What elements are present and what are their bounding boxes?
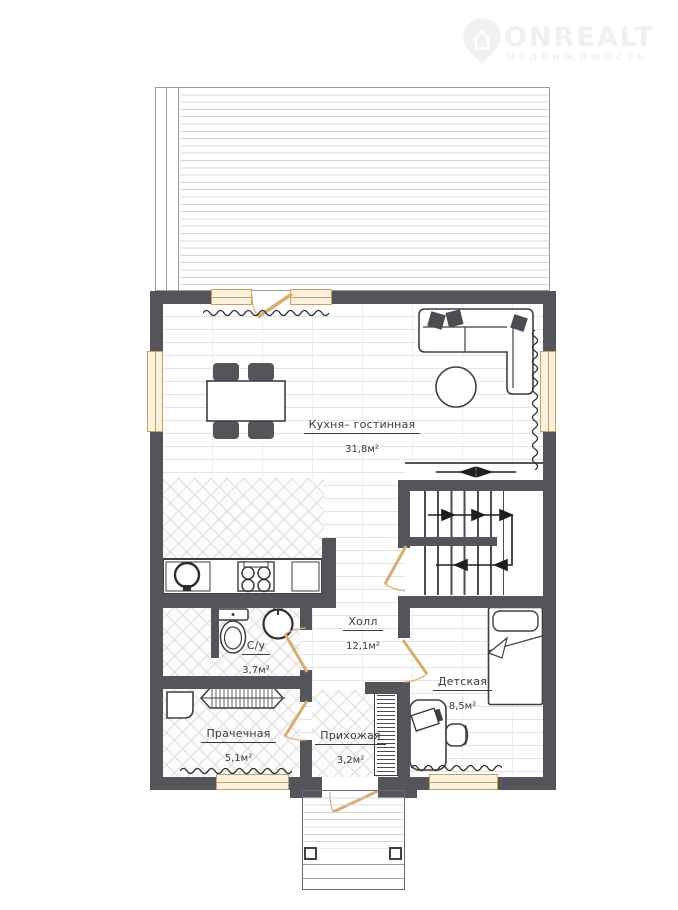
window-terrace-right <box>290 289 332 305</box>
porch <box>302 790 405 890</box>
desk-chair <box>446 724 466 746</box>
curtain-living-east <box>530 330 540 470</box>
room-label-bathroom: С/у 3,7м² <box>226 634 286 677</box>
curtain-living-north <box>203 308 330 318</box>
stairs-door <box>378 542 410 596</box>
room-label-laundry: Прачечная 5,1м² <box>196 722 281 765</box>
laundry-door <box>280 698 310 744</box>
room-name: Кухня– гостинная <box>304 418 421 434</box>
window-terrace-left <box>211 289 252 305</box>
window-laundry <box>216 774 289 790</box>
room-name: Прихожая <box>315 729 386 745</box>
wall-kids-west-bottom <box>398 682 410 777</box>
wall-stairs-south <box>398 596 543 608</box>
floor-kitchen <box>163 478 324 560</box>
window-living-west <box>147 351 163 432</box>
stairs-mid-landing-wall <box>405 537 497 546</box>
watermark-brand: ONREALT <box>504 22 655 53</box>
room-label-hall: Холл 12,1м² <box>323 610 403 653</box>
floor-plan: ONREALT НЕДВИЖИМОСТЬ <box>0 0 678 910</box>
room-name: Детская <box>433 675 492 691</box>
kitchen-sink <box>175 563 199 587</box>
onrealt-pin-house-icon <box>461 17 503 67</box>
porch-post-left <box>304 847 317 860</box>
wall-entry-north-stub <box>365 682 398 694</box>
washing-machine <box>165 690 195 720</box>
room-name: Прачечная <box>201 727 275 743</box>
wall-stairs-north <box>398 480 543 491</box>
porch-step-line-1 <box>303 864 404 865</box>
terrace-edge-line-1 <box>166 88 167 290</box>
sink-tap <box>183 585 191 591</box>
wall-bathroom-stub <box>211 608 219 658</box>
room-area: 12,1м² <box>346 641 380 652</box>
room-area: 3,2м² <box>337 755 364 766</box>
wall-kitchen-end-stub <box>322 538 336 594</box>
curtain-laundry <box>180 766 292 776</box>
wall-kitchen-south <box>150 594 336 608</box>
room-area: 3,7м² <box>242 665 269 676</box>
porch-post-right <box>389 847 402 860</box>
porch-decking <box>303 791 404 849</box>
terrace-edge-line-2 <box>178 88 179 290</box>
wall-top-right <box>330 291 556 304</box>
dining-table-with-chairs <box>205 362 287 440</box>
room-label-kids: Детская 8,5м² <box>420 670 505 713</box>
wall-bathroom-south <box>150 676 312 689</box>
room-area: 31,8м² <box>345 444 379 455</box>
coffee-table <box>433 364 479 410</box>
watermark-tagline: НЕДВИЖИМОСТЬ <box>507 53 648 63</box>
room-area: 5,1м² <box>225 753 252 764</box>
terrace <box>155 87 550 291</box>
porch-step-line-2 <box>303 878 404 879</box>
kitchen-counter <box>162 556 324 596</box>
window-kids <box>429 774 498 790</box>
terrace-decking <box>180 88 549 290</box>
room-label-living: Кухня– гостинная 31,8м² <box>282 413 442 456</box>
room-label-entry: Прихожая 3,2м² <box>308 724 393 767</box>
window-living-east <box>540 351 556 432</box>
room-area: 8,5м² <box>449 701 476 712</box>
room-name: Холл <box>343 615 382 631</box>
curtain-kids <box>411 763 502 773</box>
room-name: С/у <box>242 639 271 655</box>
stairs-strip-line <box>405 462 543 464</box>
